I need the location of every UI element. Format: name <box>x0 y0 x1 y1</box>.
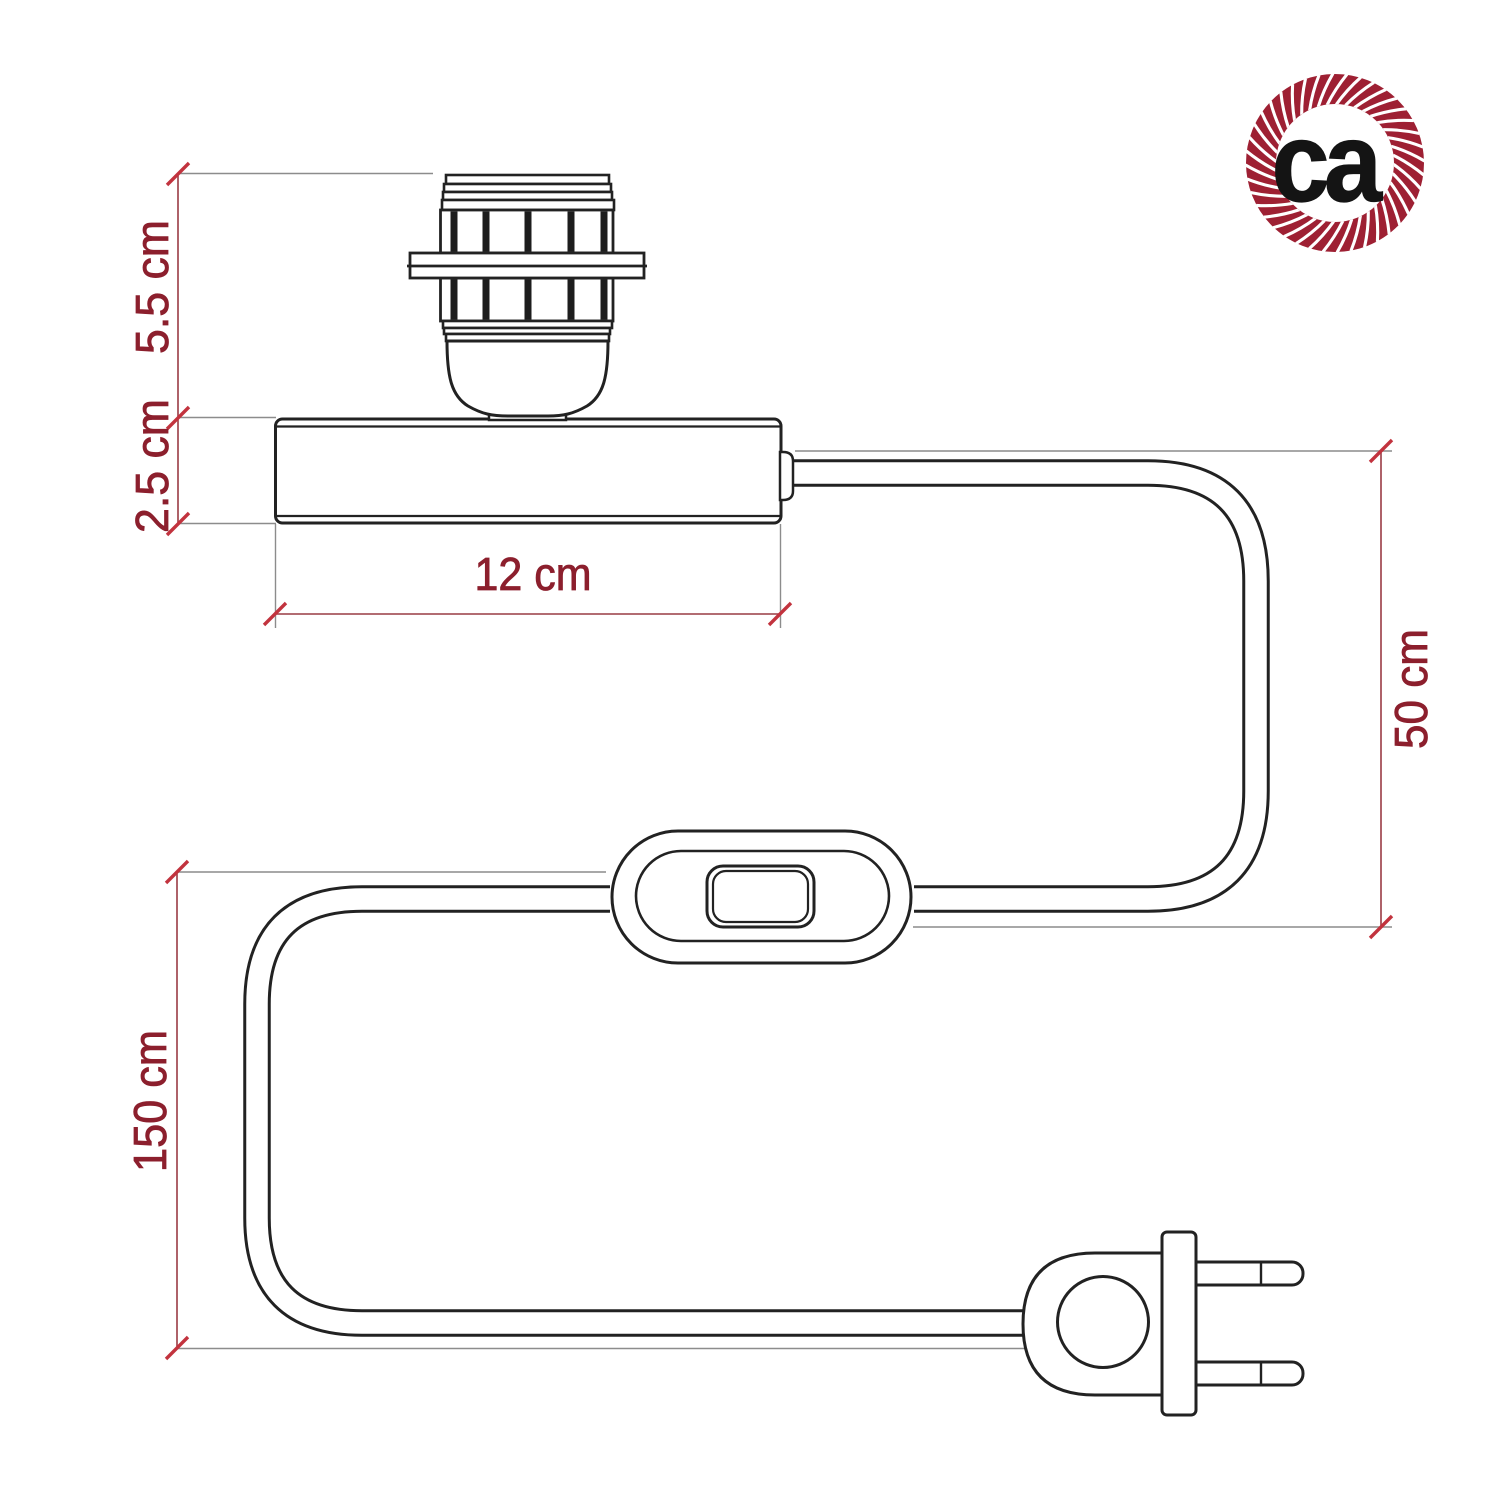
svg-text:12 cm: 12 cm <box>475 548 592 600</box>
svg-text:150 cm: 150 cm <box>124 1030 176 1172</box>
svg-text:50 cm: 50 cm <box>1385 629 1437 749</box>
svg-text:2.5 cm: 2.5 cm <box>126 399 178 533</box>
svg-text:5.5 cm: 5.5 cm <box>126 220 178 354</box>
svg-text:ca: ca <box>1272 100 1383 225</box>
